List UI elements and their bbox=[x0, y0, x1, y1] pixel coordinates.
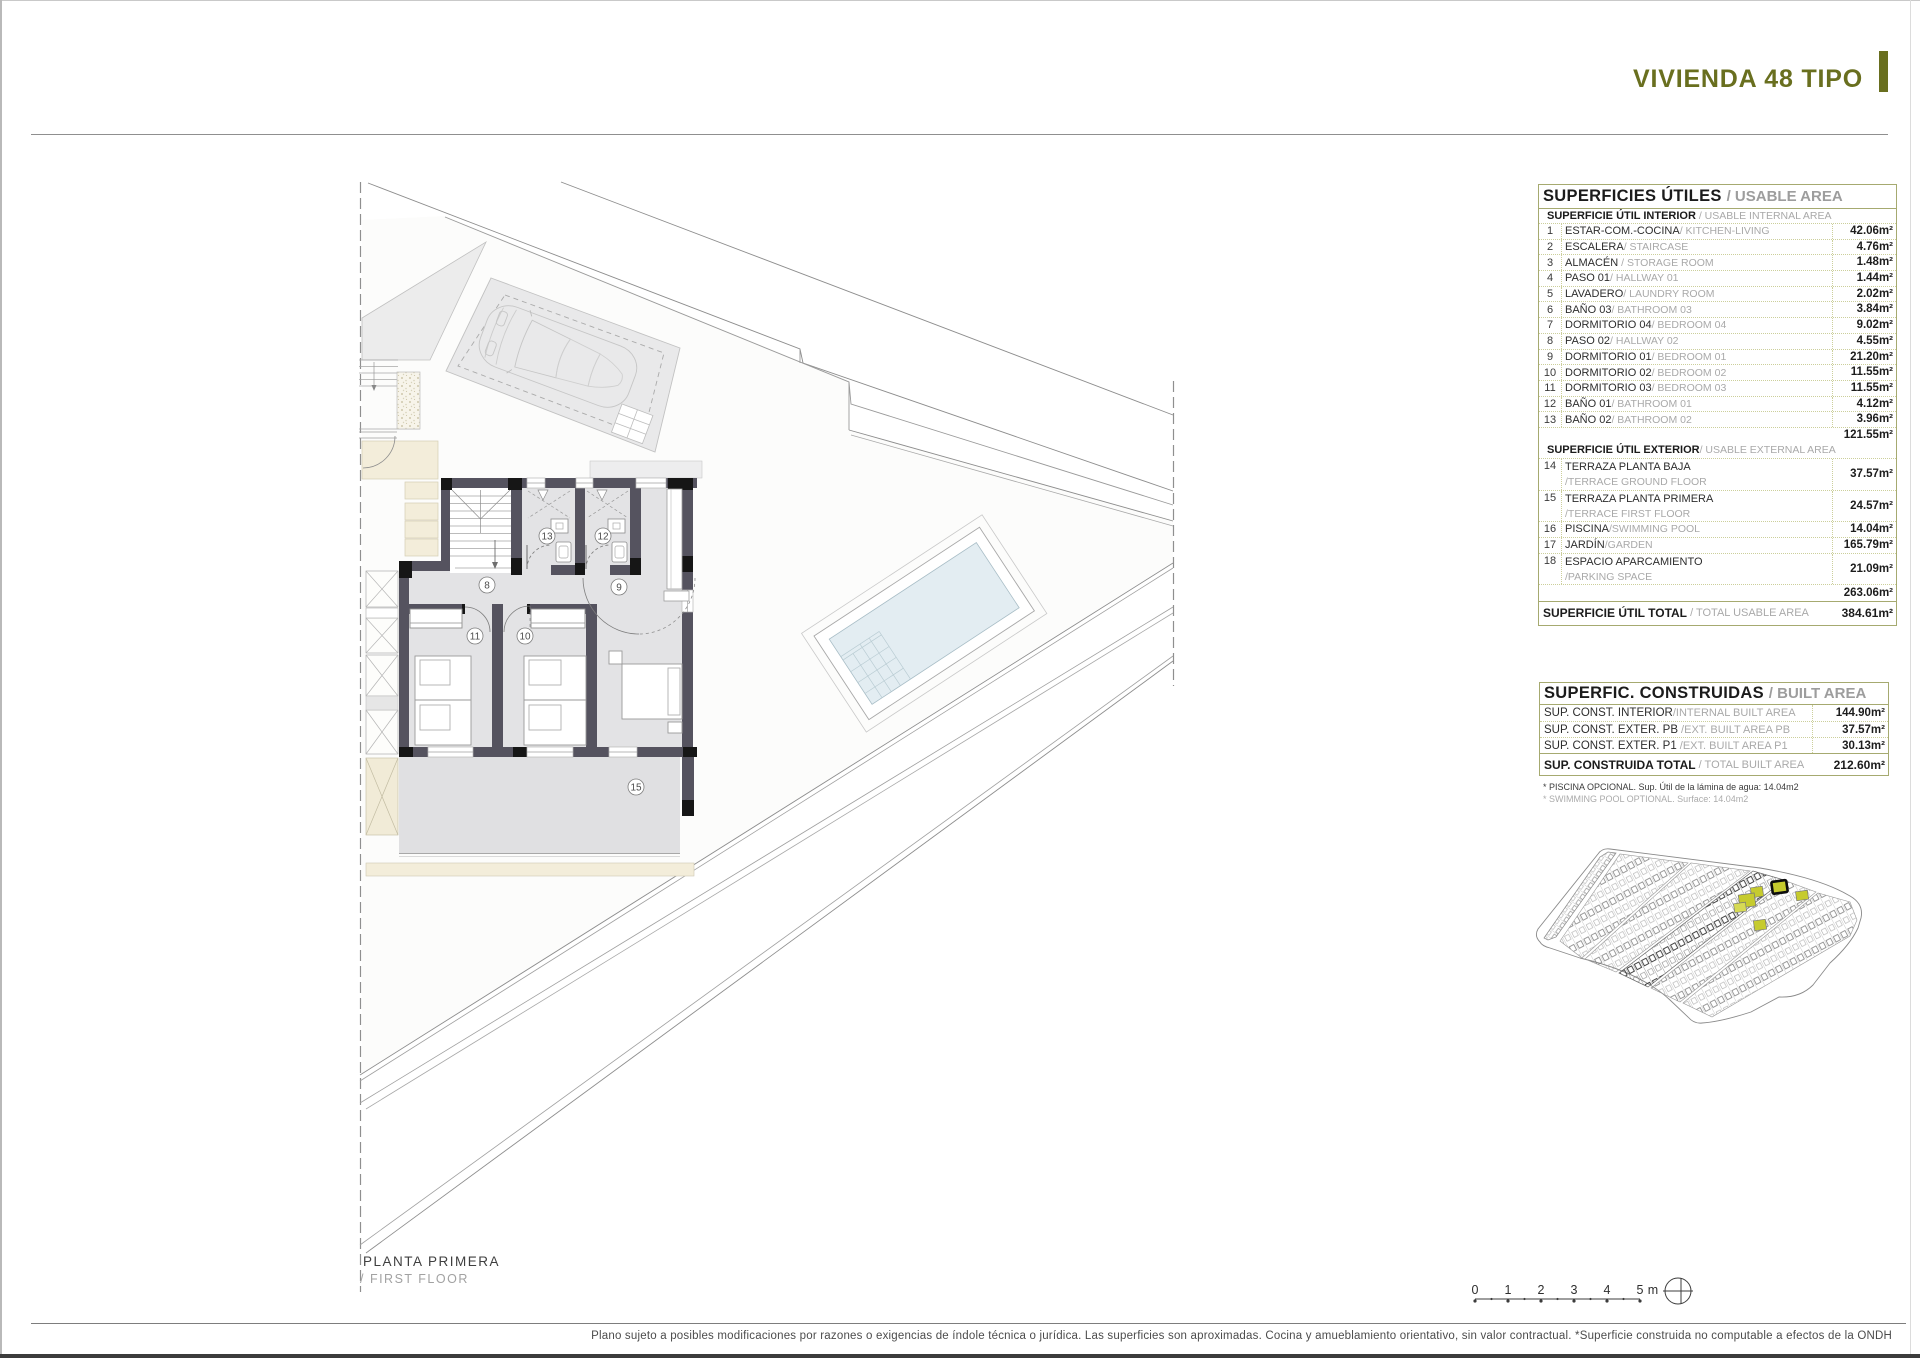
svg-text:5: 5 bbox=[1637, 1283, 1644, 1297]
svg-text:15: 15 bbox=[630, 783, 642, 794]
svg-text:3: 3 bbox=[1571, 1283, 1578, 1297]
svg-text:13: 13 bbox=[541, 532, 553, 543]
svg-text:4: 4 bbox=[1604, 1283, 1611, 1297]
svg-text:1: 1 bbox=[1505, 1283, 1512, 1297]
svg-text:10: 10 bbox=[519, 632, 531, 643]
svg-text:2: 2 bbox=[1538, 1283, 1545, 1297]
svg-text:8: 8 bbox=[484, 581, 490, 592]
svg-text:12: 12 bbox=[597, 532, 609, 543]
svg-text:9: 9 bbox=[616, 583, 622, 594]
svg-text:m: m bbox=[1648, 1283, 1658, 1297]
svg-text:0: 0 bbox=[1472, 1283, 1479, 1297]
svg-text:11: 11 bbox=[470, 632, 481, 643]
